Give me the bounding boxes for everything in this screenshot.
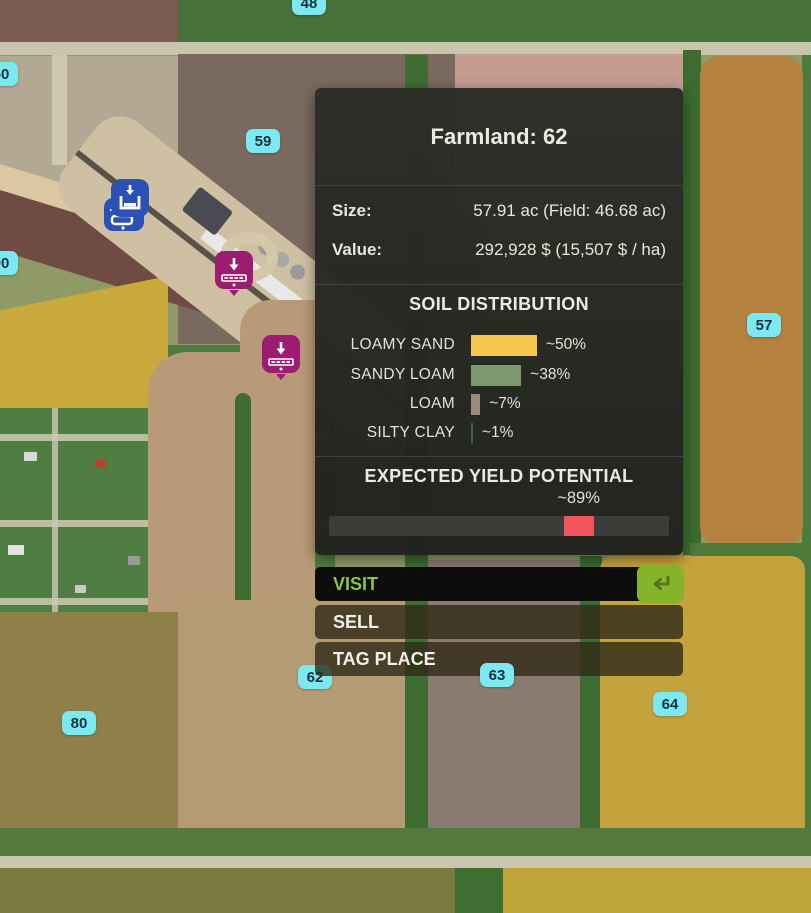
yield-potential-heading: EXPECTED YIELD POTENTIAL: [315, 466, 683, 487]
sell-point-grate-icon[interactable]: [261, 334, 301, 387]
game-map-view: 48 50 59 90 57 62 63 64 80: [0, 0, 811, 913]
tree-line-central: [235, 393, 251, 612]
soil-row: LOAM ~7%: [315, 393, 683, 417]
yield-bar-marker: [564, 516, 594, 536]
yield-percentage: ~89%: [539, 489, 619, 508]
field-region-bottom-strip-yellow[interactable]: [503, 868, 811, 913]
town-house: [24, 452, 37, 461]
sell-button-label: SELL: [333, 612, 379, 633]
value-row: Value: 292,928 $ (15,507 $ / ha): [332, 240, 666, 262]
soil-pct: ~1%: [482, 424, 513, 442]
soil-bar: [471, 394, 480, 415]
soil-name: SILTY CLAY: [315, 424, 455, 442]
divider: [315, 284, 683, 285]
visit-button[interactable]: VISIT: [315, 567, 683, 601]
town-house: [128, 556, 140, 565]
size-label: Size:: [332, 201, 372, 221]
panel-title: Farmland: 62: [315, 124, 683, 150]
divider: [315, 456, 683, 457]
yield-bar-track: [329, 516, 669, 536]
field-badge-48: 48: [292, 0, 326, 15]
field-badge-57: 57: [747, 313, 781, 337]
soil-bar: [471, 423, 473, 444]
sell-point-grate-icon[interactable]: [214, 250, 254, 303]
soil-bar: [471, 335, 537, 356]
visit-button-label: VISIT: [333, 574, 378, 595]
soil-row: SILTY CLAY ~1%: [315, 422, 683, 446]
field-badge-64: 64: [653, 692, 687, 716]
soil-distribution-heading: SOIL DISTRIBUTION: [315, 294, 683, 315]
town-house: [75, 585, 86, 593]
soil-pct: ~50%: [546, 336, 586, 354]
tree-clump-bottom: [455, 868, 503, 913]
divider: [315, 185, 683, 186]
value-label: Value:: [332, 240, 382, 260]
field-badge-50: 50: [0, 62, 18, 86]
tree-strip-top: [178, 0, 811, 46]
field-badge-90: 90: [0, 251, 18, 275]
town-house: [8, 545, 24, 555]
soil-name: SANDY LOAM: [315, 366, 455, 384]
tag-place-button-label: TAG PLACE: [333, 649, 436, 670]
farmland-info-panel: Farmland: 62 Size: 57.91 ac (Field: 46.6…: [315, 88, 683, 555]
field-badge-80: 80: [62, 711, 96, 735]
field-badge-59: 59: [246, 129, 280, 153]
soil-name: LOAMY SAND: [315, 336, 455, 354]
grain-bin: [287, 262, 308, 283]
value-value: 292,928 $ (15,507 $ / ha): [475, 240, 666, 260]
soil-bar: [471, 365, 521, 386]
tree-line-c: [683, 50, 701, 555]
soil-pct: ~7%: [489, 395, 520, 413]
field-region-left-yellow[interactable]: [0, 276, 168, 408]
sell-button[interactable]: SELL: [315, 605, 683, 639]
dark-building: [182, 186, 234, 235]
field-region-central-tan[interactable]: [148, 352, 315, 612]
field-region-bottom-strip-olive[interactable]: [0, 868, 455, 913]
enter-key-icon[interactable]: [637, 565, 684, 603]
field-region-right-orange[interactable]: [700, 56, 803, 546]
field-region-bottom-gray[interactable]: [428, 560, 580, 843]
field-badge-63: 63: [480, 663, 514, 687]
soil-pct: ~38%: [530, 366, 570, 384]
soil-name: LOAM: [315, 395, 455, 413]
soil-row: LOAMY SAND ~50%: [315, 334, 683, 358]
soil-row: SANDY LOAM ~38%: [315, 364, 683, 388]
size-value: 57.91 ac (Field: 46.68 ac): [473, 201, 666, 221]
road-left-vertical: [52, 55, 67, 165]
size-row: Size: 57.91 ac (Field: 46.68 ac): [332, 201, 666, 223]
unload-station-icon[interactable]: [110, 178, 150, 227]
town-house: [95, 460, 106, 468]
